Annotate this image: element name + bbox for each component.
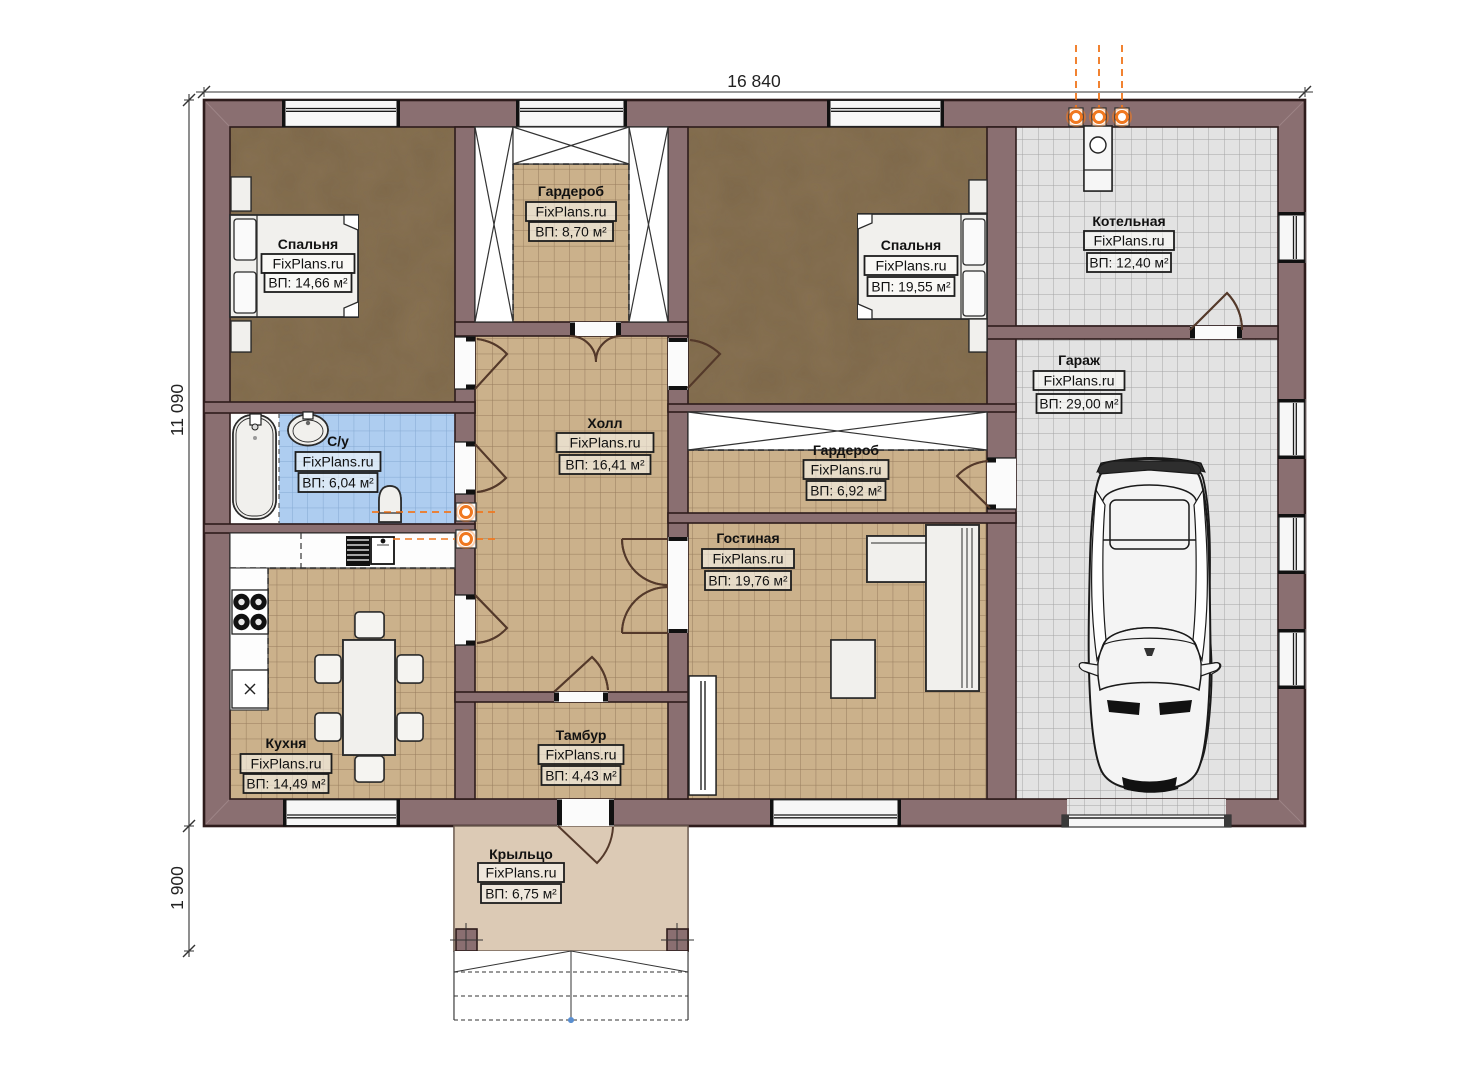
svg-text:FixPlans.ru: FixPlans.ru (251, 757, 322, 773)
svg-text:Спальня: Спальня (881, 237, 941, 253)
svg-text:11 090: 11 090 (167, 384, 187, 436)
svg-text:Гостиная: Гостиная (716, 530, 779, 546)
svg-text:FixPlans.ru: FixPlans.ru (876, 259, 947, 275)
svg-text:ВП: 6,04 м²: ВП: 6,04 м² (302, 476, 374, 491)
svg-text:ВП: 4,43 м²: ВП: 4,43 м² (545, 769, 617, 784)
svg-text:FixPlans.ru: FixPlans.ru (811, 463, 882, 479)
svg-text:Холл: Холл (587, 415, 622, 431)
svg-text:ВП: 8,70 м²: ВП: 8,70 м² (535, 225, 607, 240)
svg-text:FixPlans.ru: FixPlans.ru (1044, 374, 1115, 390)
svg-text:FixPlans.ru: FixPlans.ru (546, 748, 617, 764)
svg-text:16 840: 16 840 (727, 71, 781, 91)
svg-text:ВП: 12,40 м²: ВП: 12,40 м² (1089, 256, 1169, 271)
svg-text:Кухня: Кухня (266, 735, 307, 751)
svg-text:Гардероб: Гардероб (813, 442, 880, 458)
svg-text:Гардероб: Гардероб (538, 183, 605, 199)
svg-text:FixPlans.ru: FixPlans.ru (273, 257, 344, 273)
svg-text:ВП: 6,75 м²: ВП: 6,75 м² (485, 887, 557, 902)
svg-text:Крыльцо: Крыльцо (489, 846, 553, 862)
svg-text:ВП: 6,92 м²: ВП: 6,92 м² (810, 484, 882, 499)
svg-text:FixPlans.ru: FixPlans.ru (303, 455, 374, 471)
svg-text:FixPlans.ru: FixPlans.ru (570, 436, 641, 452)
svg-text:Котельная: Котельная (1092, 213, 1165, 229)
svg-text:ВП: 29,00 м²: ВП: 29,00 м² (1039, 397, 1119, 412)
svg-text:FixPlans.ru: FixPlans.ru (536, 205, 607, 221)
svg-text:ВП: 14,66 м²: ВП: 14,66 м² (268, 276, 348, 291)
svg-text:С/у: С/у (327, 433, 349, 449)
svg-text:ВП: 14,49 м²: ВП: 14,49 м² (246, 777, 326, 792)
svg-text:Гараж: Гараж (1058, 352, 1101, 368)
svg-text:FixPlans.ru: FixPlans.ru (713, 552, 784, 568)
svg-text:ВП: 19,55 м²: ВП: 19,55 м² (871, 280, 951, 295)
svg-text:FixPlans.ru: FixPlans.ru (486, 866, 557, 882)
svg-text:ВП: 16,41 м²: ВП: 16,41 м² (565, 458, 645, 473)
svg-text:Спальня: Спальня (278, 236, 338, 252)
svg-text:ВП: 19,76 м²: ВП: 19,76 м² (708, 574, 788, 589)
svg-text:Тамбур: Тамбур (556, 727, 607, 743)
svg-text:1 900: 1 900 (167, 866, 187, 910)
svg-text:FixPlans.ru: FixPlans.ru (1094, 234, 1165, 250)
